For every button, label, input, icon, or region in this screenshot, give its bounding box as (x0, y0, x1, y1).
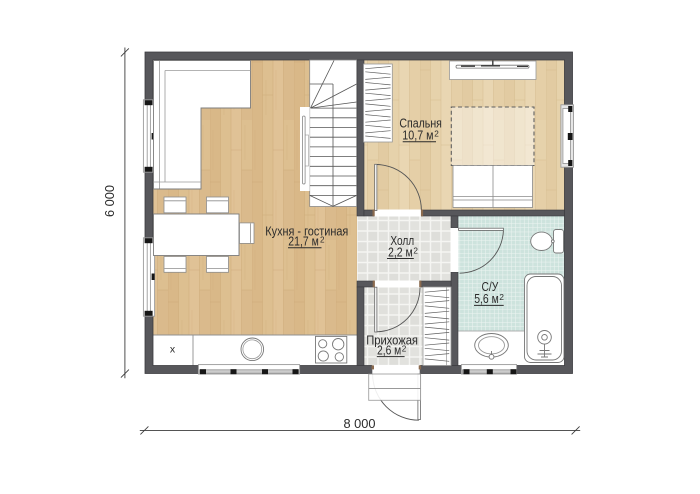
svg-text:2: 2 (434, 129, 439, 138)
svg-text:5,6 м: 5,6 м (474, 292, 499, 306)
svg-text:2: 2 (499, 293, 504, 302)
svg-text:2: 2 (320, 236, 325, 245)
svg-text:8 000: 8 000 (344, 417, 376, 431)
svg-text:2,2 м: 2,2 м (388, 245, 413, 259)
svg-text:2,6 м: 2,6 м (377, 344, 401, 358)
svg-text:10,7 м: 10,7 м (402, 128, 433, 142)
svg-text:6 000: 6 000 (103, 185, 117, 217)
svg-text:2: 2 (413, 246, 418, 255)
svg-text:2: 2 (402, 345, 407, 354)
svg-text:21,7 м: 21,7 м (288, 234, 319, 248)
svg-text:x: x (170, 343, 176, 355)
